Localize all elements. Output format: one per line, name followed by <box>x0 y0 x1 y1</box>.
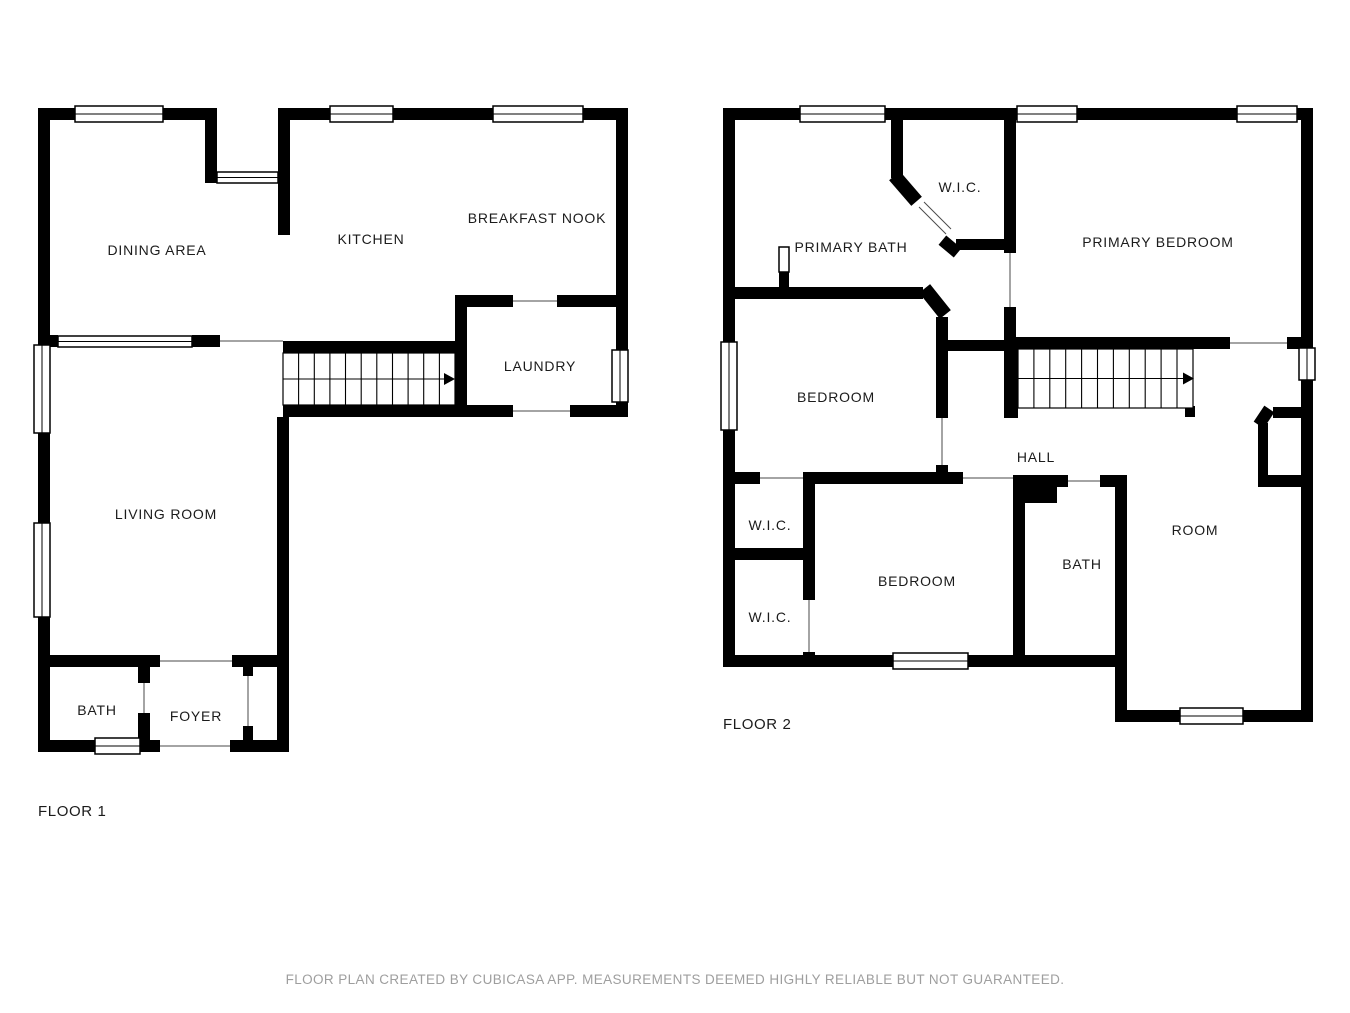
room-label-room: ROOM <box>1172 522 1219 538</box>
room-divider-opening <box>58 336 192 347</box>
room-label-bath2: BATH <box>1062 556 1102 572</box>
window <box>34 345 50 433</box>
floor1-walls <box>38 108 628 752</box>
room-label-bath: BATH <box>77 702 117 718</box>
room-label-bedroom-left: BEDROOM <box>797 389 875 405</box>
floor2-plan: W.I.C. PRIMARY BATH PRIMARY BEDROOM BEDR… <box>721 106 1315 733</box>
room-label-laundry: LAUNDRY <box>504 358 576 374</box>
floor1-plan: DINING AREA KITCHEN BREAKFAST NOOK LAUND… <box>34 106 628 820</box>
window <box>34 523 50 617</box>
window <box>1180 708 1243 724</box>
room-label-bedroom-lower: BEDROOM <box>878 573 956 589</box>
room-label-kitchen: KITCHEN <box>337 231 404 247</box>
floor2-walls <box>723 108 1313 722</box>
window <box>800 106 885 122</box>
window <box>721 342 737 430</box>
window <box>893 653 968 669</box>
room-label-wic-middle: W.I.C. <box>749 517 792 533</box>
disclaimer-text: FLOOR PLAN CREATED BY CUBICASA APP. MEAS… <box>286 972 1065 987</box>
sliding-door-window <box>217 172 278 183</box>
window <box>75 106 163 122</box>
floor2-staircase <box>1018 349 1194 408</box>
window <box>1299 348 1315 380</box>
window <box>612 350 628 402</box>
room-label-dining-area: DINING AREA <box>107 242 206 258</box>
room-label-hall: HALL <box>1017 449 1055 465</box>
window <box>493 106 583 122</box>
room-label-foyer: FOYER <box>170 708 222 724</box>
solid-chase-block <box>1013 475 1057 503</box>
window <box>95 738 140 754</box>
room-label-primary-bath: PRIMARY BATH <box>794 239 907 255</box>
floor-plan-page: DINING AREA KITCHEN BREAKFAST NOOK LAUND… <box>0 0 1350 1013</box>
window <box>1237 106 1297 122</box>
floor1-title: FLOOR 1 <box>38 803 106 820</box>
window <box>330 106 393 122</box>
room-label-wic-top: W.I.C. <box>939 179 982 195</box>
floor1-staircase <box>283 353 455 405</box>
floor2-title: FLOOR 2 <box>723 716 791 733</box>
floor-plan-drawing: DINING AREA KITCHEN BREAKFAST NOOK LAUND… <box>0 0 1350 1013</box>
floor1-room-labels: DINING AREA KITCHEN BREAKFAST NOOK LAUND… <box>77 210 606 724</box>
room-label-breakfast-nook: BREAKFAST NOOK <box>468 210 607 226</box>
door-leaf <box>779 247 789 272</box>
room-label-living-room: LIVING ROOM <box>115 506 217 522</box>
room-label-wic-lower: W.I.C. <box>749 609 792 625</box>
window <box>1017 106 1077 122</box>
room-label-primary-bedroom: PRIMARY BEDROOM <box>1082 234 1234 250</box>
